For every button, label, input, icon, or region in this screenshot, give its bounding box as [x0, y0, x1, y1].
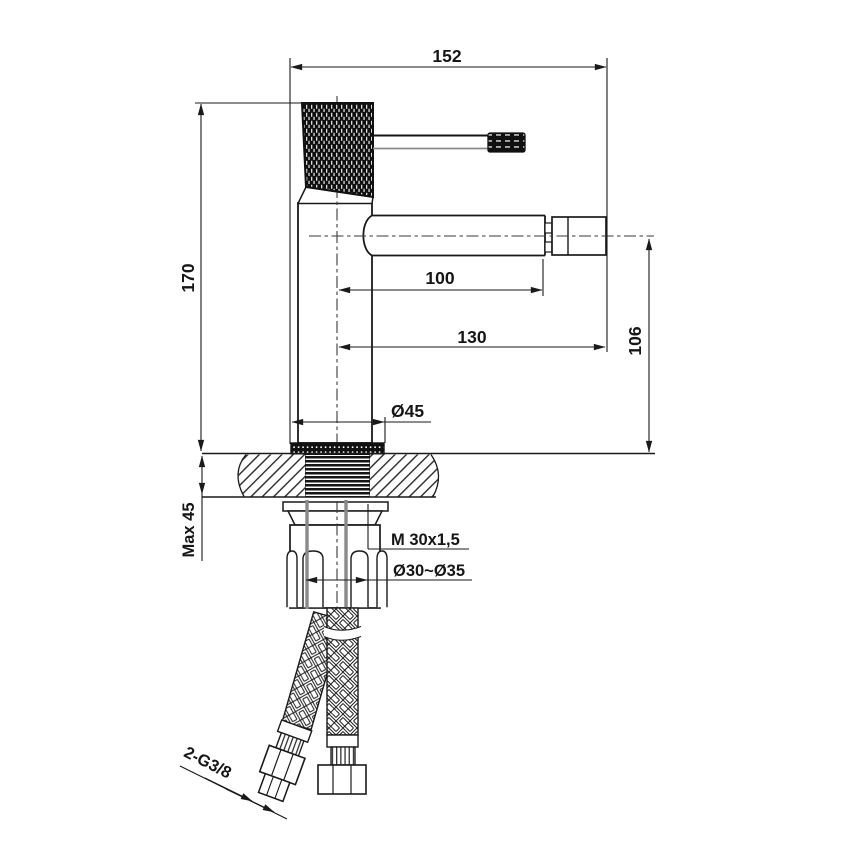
dim-106-label: 106: [625, 326, 645, 355]
technical-drawing-canvas: 152 170 100 130 106 Ø45 Max 45 M 30x1,5 …: [0, 0, 868, 868]
dim-152-label: 152: [432, 46, 461, 66]
thread-spec-label: M 30x1,5: [391, 531, 460, 549]
lever-knurled-tip: [488, 133, 525, 152]
counter-deck: [202, 454, 655, 498]
dim-d45-label: Ø45: [391, 401, 424, 421]
dimensions: [180, 58, 649, 819]
dim-100-label: 100: [425, 268, 454, 288]
hex-nut-fitting: [318, 765, 366, 794]
spout-groove-bottom: [545, 242, 552, 252]
knurled-handle: [302, 103, 373, 197]
faucet-body: [298, 203, 372, 443]
hose-thread-label: 2-G3/8: [181, 743, 234, 782]
threaded-shank: [305, 455, 370, 497]
dim-170-label: 170: [178, 263, 198, 292]
dim-130-label: 130: [457, 327, 486, 347]
dimension-labels: 152 170 100 130 106 Ø45 Max 45 M 30x1,5 …: [178, 46, 645, 782]
spout-groove-top: [545, 223, 552, 233]
hole-diameter-label: Ø30~Ø35: [393, 562, 465, 580]
bidet-mixer-drawing: 152 170 100 130 106 Ø45 Max 45 M 30x1,5 …: [0, 0, 868, 868]
washer: [283, 502, 388, 511]
dim-max45-label: Max 45: [180, 502, 198, 557]
vertical-hose: [318, 608, 366, 794]
hose-ferrule-vertical: [327, 735, 358, 747]
